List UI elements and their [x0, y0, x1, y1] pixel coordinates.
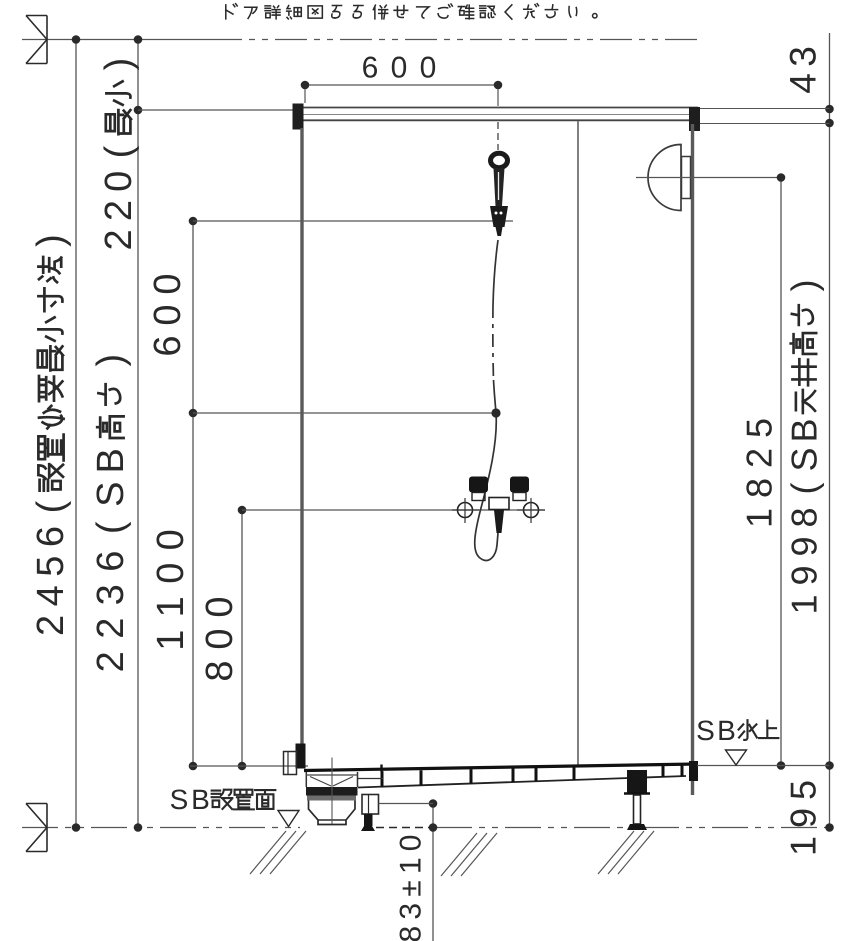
svg-text:6: 6	[90, 551, 132, 572]
svg-text:0: 0	[199, 628, 241, 649]
svg-text:3: 3	[90, 584, 132, 605]
svg-text:B: B	[90, 448, 132, 473]
svg-text:6: 6	[30, 526, 72, 547]
svg-text:8: 8	[395, 926, 428, 941]
svg-text:3: 3	[783, 46, 824, 67]
svg-text:2: 2	[98, 200, 140, 221]
svg-text:2: 2	[739, 448, 780, 468]
svg-text:3: 3	[395, 903, 428, 920]
svg-text:9: 9	[784, 536, 825, 556]
svg-text:5: 5	[30, 556, 72, 577]
svg-text:S: S	[696, 715, 715, 746]
svg-text:(: (	[784, 483, 825, 495]
svg-text:): )	[98, 58, 140, 71]
svg-text:): )	[784, 280, 825, 292]
svg-text:8: 8	[199, 660, 241, 681]
svg-text:2: 2	[98, 229, 140, 250]
svg-text:8: 8	[739, 478, 780, 498]
svg-text:5: 5	[783, 780, 824, 800]
svg-text:±: ±	[395, 880, 428, 896]
svg-text:S: S	[90, 482, 132, 507]
svg-text:): )	[90, 354, 132, 367]
svg-text:): )	[30, 234, 72, 247]
svg-text:S: S	[784, 447, 825, 471]
svg-text:4: 4	[30, 585, 72, 606]
svg-text:0: 0	[150, 563, 192, 584]
svg-text:B: B	[717, 715, 736, 746]
svg-text:2: 2	[90, 651, 132, 672]
svg-text:0: 0	[420, 52, 437, 85]
svg-text:0: 0	[150, 529, 192, 550]
svg-text:(: (	[90, 521, 132, 534]
svg-text:B: B	[191, 784, 210, 815]
svg-text:0: 0	[395, 835, 428, 852]
svg-text:1: 1	[150, 630, 192, 651]
svg-text:4: 4	[783, 73, 824, 94]
svg-text:8: 8	[784, 507, 825, 527]
svg-text:2: 2	[90, 618, 132, 639]
svg-text:S: S	[170, 784, 189, 815]
svg-text:0: 0	[391, 52, 408, 85]
svg-text:0: 0	[98, 171, 140, 192]
svg-text:6: 6	[147, 335, 189, 356]
svg-text:1: 1	[150, 596, 192, 617]
svg-text:1: 1	[784, 594, 825, 614]
svg-text:1: 1	[739, 508, 780, 528]
svg-text:1: 1	[783, 836, 824, 856]
svg-text:1: 1	[395, 857, 428, 874]
svg-text:(: (	[30, 500, 72, 513]
svg-text:(: (	[98, 145, 140, 158]
svg-text:0: 0	[147, 304, 189, 325]
svg-text:5: 5	[739, 418, 780, 438]
svg-text:6: 6	[362, 52, 379, 85]
svg-text:9: 9	[784, 565, 825, 585]
svg-text:0: 0	[199, 596, 241, 617]
svg-text:9: 9	[783, 808, 824, 828]
svg-text:B: B	[784, 418, 825, 442]
svg-text:2: 2	[30, 615, 72, 636]
svg-text:0: 0	[147, 273, 189, 294]
